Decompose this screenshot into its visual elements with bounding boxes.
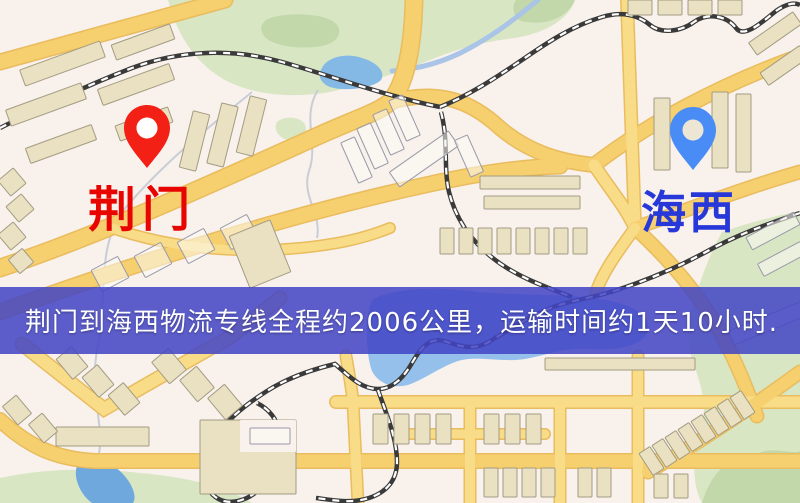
destination-city-label: 海西 bbox=[641, 176, 737, 241]
destination-pin-icon[interactable] bbox=[670, 107, 716, 170]
map-canvas[interactable] bbox=[0, 0, 800, 503]
origin-pin-icon[interactable] bbox=[124, 105, 170, 168]
route-info-banner: 荆门到海西物流专线全程约2006公里，运输时间约1天10小时. bbox=[0, 287, 800, 354]
map-screenshot: 荆门到海西物流专线全程约2006公里，运输时间约1天10小时. 荆门 海西 bbox=[0, 0, 800, 503]
origin-city-label: 荆门 bbox=[88, 170, 196, 240]
route-info-text: 荆门到海西物流专线全程约2006公里，运输时间约1天10小时. bbox=[0, 302, 778, 339]
